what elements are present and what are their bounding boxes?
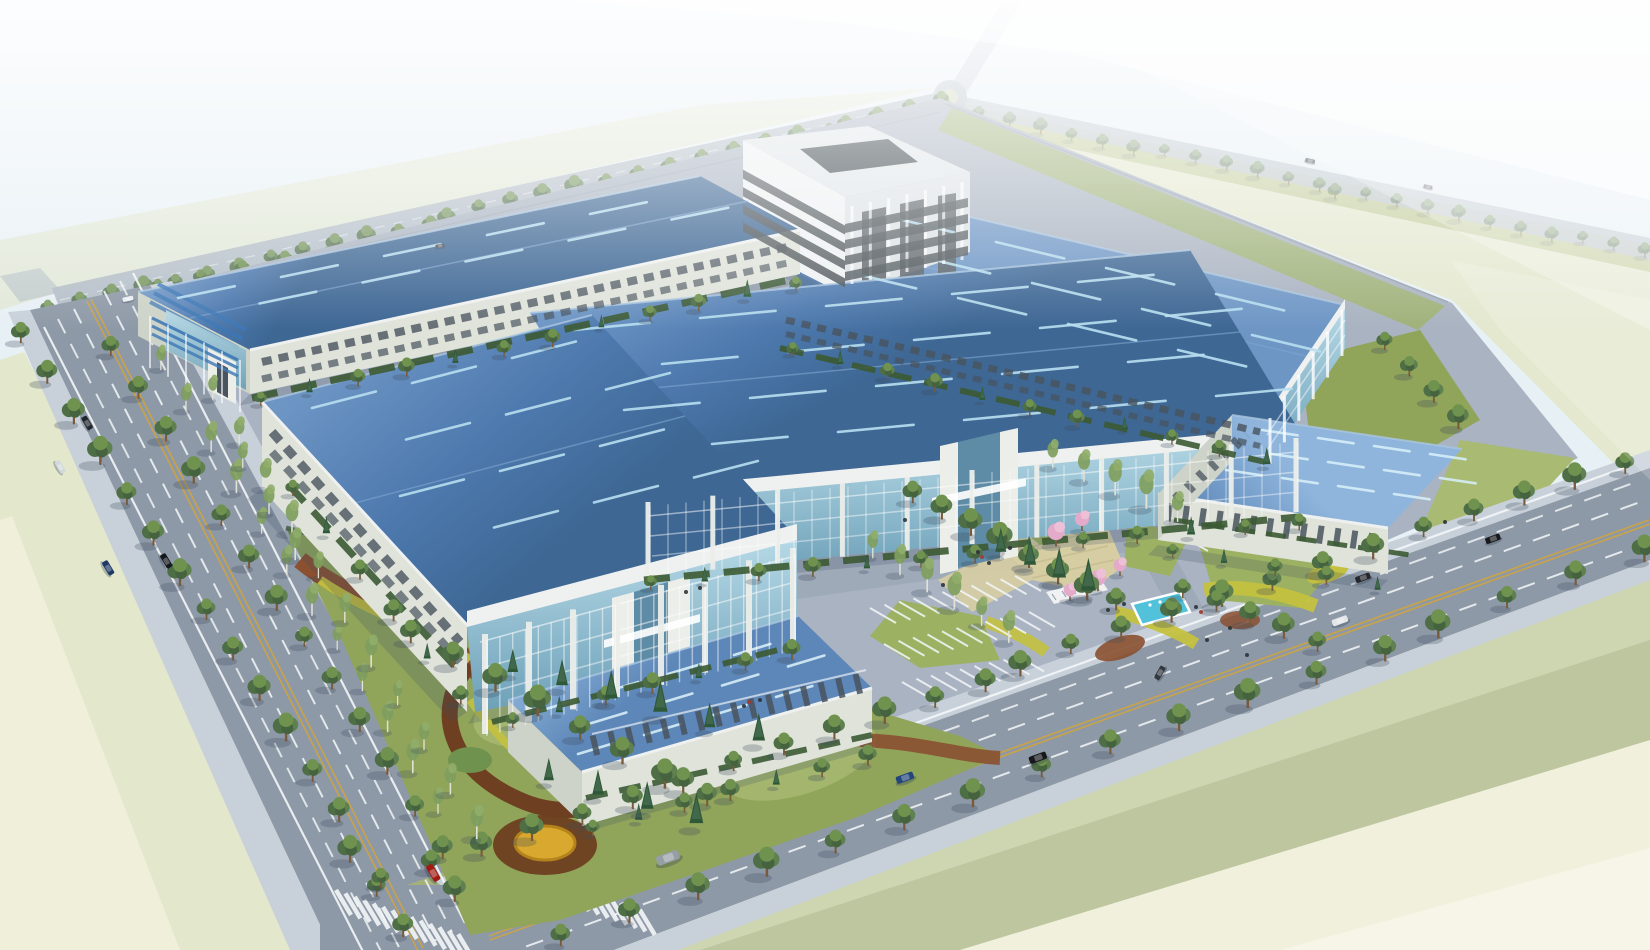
pedestrian — [980, 555, 984, 559]
pedestrian — [1245, 653, 1249, 657]
pedestrian — [1122, 602, 1126, 606]
pedestrian — [747, 700, 751, 704]
pedestrian — [1205, 638, 1209, 642]
pedestrian — [1199, 610, 1203, 614]
pedestrian — [941, 583, 945, 587]
pedestrian — [1106, 608, 1110, 612]
pedestrian — [1194, 605, 1198, 609]
pedestrian — [684, 590, 688, 594]
fountain-jet-1 — [1148, 603, 1151, 606]
pedestrian — [742, 704, 746, 708]
pedestrian — [976, 550, 980, 554]
fountain-jet-2 — [1158, 600, 1161, 603]
scene-canvas — [0, 0, 1650, 950]
pedestrian — [1008, 546, 1012, 550]
pedestrian — [987, 561, 991, 565]
pedestrian — [698, 586, 702, 590]
pedestrian — [903, 518, 907, 522]
aerial-rendering — [0, 0, 1650, 950]
pedestrian — [758, 698, 762, 702]
pedestrian — [1443, 520, 1447, 524]
pedestrian — [1228, 626, 1232, 630]
